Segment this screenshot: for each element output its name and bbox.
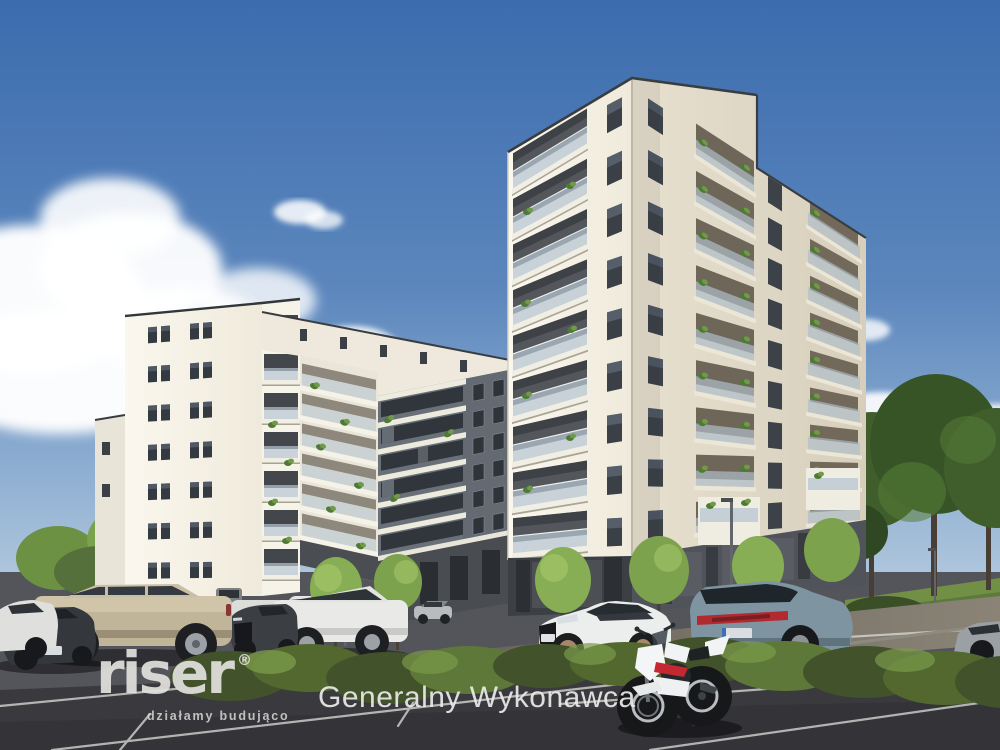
wing-end-balconies <box>300 355 378 582</box>
architectural-rendering: riser® działamy budująco Generalny Wykon… <box>0 0 1000 750</box>
scene-canvas <box>0 0 1000 750</box>
gray-wing <box>378 369 515 556</box>
